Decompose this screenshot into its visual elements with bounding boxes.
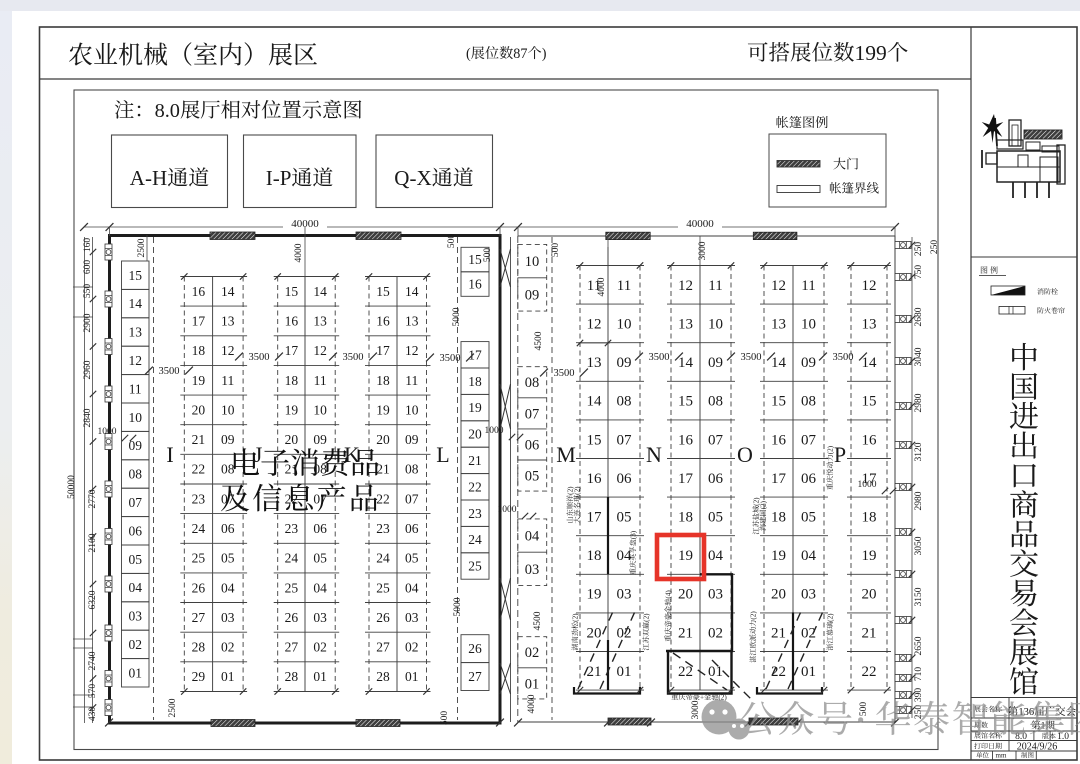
- svg-text:05: 05: [708, 510, 723, 526]
- svg-text:14: 14: [128, 296, 142, 311]
- svg-text:04: 04: [801, 548, 817, 564]
- svg-text:21: 21: [192, 432, 206, 447]
- svg-text:08: 08: [801, 394, 816, 410]
- svg-text:430: 430: [88, 707, 98, 722]
- svg-text:03: 03: [801, 587, 816, 603]
- svg-text:15: 15: [285, 284, 299, 299]
- svg-text:17: 17: [192, 314, 206, 329]
- svg-text:9: 9: [865, 41, 876, 65]
- svg-text:-: -: [273, 166, 280, 190]
- svg-text:24: 24: [192, 521, 206, 536]
- svg-text:27: 27: [192, 610, 206, 625]
- svg-text:06: 06: [405, 521, 419, 536]
- svg-text:8: 8: [513, 46, 520, 62]
- svg-text:50000: 50000: [67, 475, 77, 499]
- svg-text:2770: 2770: [88, 489, 98, 508]
- svg-text:13: 13: [128, 325, 142, 340]
- svg-text:04: 04: [128, 580, 142, 595]
- svg-text:04: 04: [221, 580, 235, 595]
- svg-text:22: 22: [192, 462, 206, 477]
- svg-text:25: 25: [192, 551, 206, 566]
- svg-text:05: 05: [313, 551, 327, 566]
- svg-text:03: 03: [708, 587, 723, 603]
- svg-text:4000: 4000: [597, 277, 607, 296]
- svg-text:21: 21: [678, 625, 693, 641]
- svg-text:16: 16: [285, 314, 299, 329]
- svg-text:20: 20: [862, 587, 877, 603]
- svg-text:03: 03: [525, 562, 540, 578]
- svg-text:24: 24: [468, 532, 482, 547]
- svg-text:12: 12: [678, 278, 693, 294]
- svg-text:18: 18: [468, 374, 482, 389]
- svg-text:17: 17: [285, 343, 299, 358]
- svg-text:5000: 5000: [453, 597, 463, 616]
- svg-text:2680: 2680: [914, 307, 924, 326]
- svg-text:25: 25: [285, 580, 299, 595]
- svg-text:250: 250: [914, 242, 924, 257]
- svg-text:(: (: [466, 46, 471, 62]
- svg-text:): ): [542, 46, 547, 62]
- svg-text:19: 19: [192, 373, 206, 388]
- svg-text:19: 19: [587, 587, 602, 603]
- svg-text:·: ·: [855, 700, 867, 741]
- svg-text:14: 14: [587, 394, 603, 410]
- svg-text:24: 24: [376, 551, 390, 566]
- svg-text:07: 07: [708, 432, 724, 448]
- svg-text:26: 26: [192, 580, 206, 595]
- svg-text:26: 26: [285, 610, 299, 625]
- svg-text:3500: 3500: [554, 368, 575, 379]
- svg-text:2980: 2980: [914, 491, 924, 510]
- svg-text:12: 12: [862, 278, 877, 294]
- svg-text:01: 01: [128, 665, 142, 680]
- svg-text:16: 16: [678, 432, 694, 448]
- svg-text:10: 10: [313, 403, 327, 418]
- svg-text:14: 14: [405, 284, 419, 299]
- svg-text:05: 05: [525, 469, 540, 485]
- svg-text:15: 15: [376, 284, 390, 299]
- svg-text:10: 10: [525, 254, 540, 270]
- svg-text:03: 03: [313, 610, 327, 625]
- svg-text:390: 390: [914, 688, 924, 703]
- svg-text:13: 13: [405, 314, 419, 329]
- svg-text:10: 10: [617, 317, 632, 333]
- svg-text:09: 09: [313, 432, 327, 447]
- svg-text:4000: 4000: [294, 243, 304, 262]
- svg-text:3500: 3500: [741, 352, 762, 363]
- svg-text:13: 13: [771, 317, 786, 333]
- svg-text:21: 21: [468, 453, 482, 468]
- svg-text:17: 17: [376, 343, 390, 358]
- svg-text:09: 09: [617, 355, 632, 371]
- svg-text:2840: 2840: [83, 408, 93, 427]
- svg-text:03: 03: [221, 610, 235, 625]
- svg-text:160: 160: [83, 238, 93, 253]
- svg-text:15: 15: [468, 252, 482, 267]
- svg-text:03: 03: [128, 609, 142, 624]
- svg-text:18: 18: [192, 343, 206, 358]
- svg-text:18: 18: [678, 510, 693, 526]
- svg-text:17: 17: [587, 510, 603, 526]
- svg-text:20: 20: [376, 432, 390, 447]
- svg-text:08: 08: [128, 467, 142, 482]
- svg-text:22: 22: [678, 664, 693, 680]
- svg-text:1000: 1000: [485, 426, 504, 436]
- svg-text:2740: 2740: [88, 651, 98, 670]
- svg-text:9: 9: [876, 41, 887, 65]
- svg-text:02: 02: [313, 640, 327, 655]
- svg-text:08: 08: [405, 462, 419, 477]
- svg-text:10: 10: [128, 410, 142, 425]
- svg-text:1000: 1000: [498, 505, 517, 515]
- svg-text:17: 17: [771, 471, 787, 487]
- svg-text:06: 06: [708, 471, 724, 487]
- svg-text:P: P: [834, 442, 846, 467]
- svg-text:16: 16: [376, 314, 390, 329]
- svg-text:20: 20: [468, 427, 482, 442]
- svg-text:mm: mm: [996, 752, 1007, 760]
- svg-text:07: 07: [405, 491, 419, 506]
- svg-text:05: 05: [801, 510, 816, 526]
- svg-text:20: 20: [771, 587, 786, 603]
- svg-text:2500: 2500: [168, 698, 178, 717]
- svg-text:27: 27: [376, 640, 390, 655]
- svg-text:Q: Q: [394, 166, 409, 190]
- svg-text:250: 250: [930, 240, 940, 255]
- svg-text:07: 07: [525, 406, 540, 422]
- svg-text:01: 01: [525, 676, 540, 692]
- svg-text:07: 07: [313, 491, 327, 506]
- svg-text:18: 18: [376, 373, 390, 388]
- svg-text:04: 04: [525, 529, 540, 545]
- svg-text:04: 04: [313, 580, 327, 595]
- svg-text:14: 14: [221, 284, 235, 299]
- svg-text:11: 11: [221, 373, 234, 388]
- svg-text:08: 08: [708, 394, 723, 410]
- svg-text:N: N: [646, 442, 662, 467]
- svg-text:09: 09: [801, 355, 816, 371]
- svg-text:H: H: [152, 166, 167, 190]
- svg-text:04: 04: [708, 548, 724, 564]
- svg-text:2900: 2900: [83, 313, 93, 332]
- svg-text:28: 28: [376, 669, 390, 684]
- svg-text:+: +: [700, 694, 704, 702]
- svg-text:06: 06: [313, 521, 327, 536]
- svg-text:06: 06: [221, 521, 235, 536]
- svg-text:14: 14: [862, 355, 878, 371]
- svg-text:10: 10: [801, 317, 816, 333]
- svg-text:2650: 2650: [914, 636, 924, 655]
- svg-text:05: 05: [617, 510, 632, 526]
- svg-text:06: 06: [128, 523, 142, 538]
- svg-text:17: 17: [678, 471, 694, 487]
- svg-text:06: 06: [801, 471, 817, 487]
- svg-text:3500: 3500: [249, 352, 270, 363]
- svg-text:18: 18: [285, 373, 299, 388]
- svg-text:01: 01: [221, 669, 235, 684]
- svg-text:19: 19: [285, 403, 299, 418]
- svg-text:3120: 3120: [914, 442, 924, 461]
- svg-text:28: 28: [285, 669, 299, 684]
- svg-text:07: 07: [801, 432, 817, 448]
- svg-text:3050: 3050: [914, 536, 924, 555]
- svg-text:07: 07: [128, 495, 142, 510]
- svg-text:01: 01: [617, 664, 632, 680]
- svg-text:4000: 4000: [527, 694, 537, 713]
- svg-text:23: 23: [468, 506, 482, 521]
- svg-text:07: 07: [617, 432, 633, 448]
- svg-text:15: 15: [587, 432, 602, 448]
- svg-text:600: 600: [83, 260, 93, 275]
- svg-text:09: 09: [525, 288, 540, 304]
- svg-text:12: 12: [313, 343, 327, 358]
- svg-text:08: 08: [525, 375, 540, 391]
- svg-text:11: 11: [405, 373, 418, 388]
- svg-text:05: 05: [221, 551, 235, 566]
- svg-text:25: 25: [468, 559, 482, 574]
- svg-text:18: 18: [771, 510, 786, 526]
- svg-text:10: 10: [708, 317, 723, 333]
- svg-text:27: 27: [468, 669, 482, 684]
- svg-text:15: 15: [128, 268, 142, 283]
- svg-text:05: 05: [405, 551, 419, 566]
- svg-text:15: 15: [771, 394, 786, 410]
- svg-text:12: 12: [587, 317, 602, 333]
- svg-text:3500: 3500: [440, 353, 461, 364]
- svg-text:500: 500: [447, 234, 457, 249]
- svg-text:500: 500: [440, 711, 450, 726]
- svg-text:1.0: 1.0: [1057, 732, 1069, 742]
- svg-text:2960: 2960: [83, 360, 93, 379]
- svg-text:01: 01: [405, 669, 419, 684]
- svg-text:11: 11: [801, 278, 815, 294]
- svg-text:19: 19: [678, 548, 693, 564]
- svg-text:26: 26: [468, 641, 482, 656]
- svg-text:14: 14: [771, 355, 787, 371]
- svg-text:20: 20: [192, 403, 206, 418]
- svg-text:3500: 3500: [343, 352, 364, 363]
- svg-text:15: 15: [678, 394, 693, 410]
- svg-text:22: 22: [862, 664, 877, 680]
- svg-text:0: 0: [170, 100, 180, 122]
- svg-text:02: 02: [221, 640, 235, 655]
- svg-text:-: -: [410, 166, 417, 190]
- svg-text:3150: 3150: [914, 587, 924, 606]
- svg-text:O: O: [737, 442, 753, 467]
- svg-text:11: 11: [708, 278, 722, 294]
- svg-text:3500: 3500: [833, 352, 854, 363]
- svg-text:17: 17: [468, 347, 482, 362]
- svg-text:1000: 1000: [858, 480, 877, 490]
- svg-text:11: 11: [617, 278, 631, 294]
- svg-text:3500: 3500: [649, 352, 670, 363]
- svg-text:14: 14: [313, 284, 327, 299]
- svg-text:X: X: [417, 166, 432, 190]
- svg-text:4500: 4500: [534, 331, 544, 350]
- svg-text:28: 28: [192, 640, 206, 655]
- svg-text:13: 13: [862, 317, 877, 333]
- svg-text:11: 11: [314, 373, 327, 388]
- svg-text:08: 08: [617, 394, 632, 410]
- svg-text:2024/9/26: 2024/9/26: [1017, 742, 1058, 753]
- svg-text:250: 250: [914, 705, 924, 720]
- svg-text:21: 21: [862, 625, 877, 641]
- svg-text:18: 18: [862, 510, 877, 526]
- svg-text:02: 02: [617, 625, 632, 641]
- svg-text:4500: 4500: [533, 611, 543, 630]
- svg-text:11: 11: [129, 381, 142, 396]
- svg-text:25: 25: [376, 580, 390, 595]
- svg-text:3000: 3000: [691, 700, 701, 719]
- svg-text:L: L: [436, 442, 449, 467]
- svg-text:27: 27: [285, 640, 299, 655]
- svg-text:01: 01: [708, 664, 723, 680]
- svg-text:2500: 2500: [137, 238, 147, 257]
- svg-text:22: 22: [376, 491, 390, 506]
- svg-text:1: 1: [855, 41, 866, 65]
- svg-text:14: 14: [678, 355, 694, 371]
- svg-text:02: 02: [128, 637, 142, 652]
- svg-text:6320: 6320: [88, 590, 98, 609]
- svg-text:550: 550: [83, 284, 93, 299]
- svg-text:06: 06: [525, 437, 540, 453]
- svg-text:18: 18: [587, 548, 602, 564]
- svg-text:13: 13: [678, 317, 693, 333]
- svg-text:13: 13: [313, 314, 327, 329]
- svg-text:16: 16: [771, 432, 787, 448]
- svg-text:06: 06: [617, 471, 633, 487]
- svg-text:710: 710: [914, 667, 924, 682]
- svg-text:04: 04: [405, 580, 419, 595]
- svg-text:20: 20: [678, 587, 693, 603]
- svg-text:16: 16: [862, 432, 878, 448]
- svg-text:12: 12: [771, 278, 786, 294]
- svg-text:08: 08: [221, 462, 235, 477]
- svg-text:16: 16: [587, 471, 603, 487]
- svg-text:3500: 3500: [159, 366, 180, 377]
- svg-text:20: 20: [587, 625, 602, 641]
- svg-text:09: 09: [221, 432, 235, 447]
- svg-text:13: 13: [587, 355, 602, 371]
- svg-text:1000: 1000: [98, 427, 117, 437]
- svg-text:22: 22: [468, 479, 482, 494]
- svg-text:01: 01: [801, 664, 816, 680]
- svg-text:20: 20: [285, 432, 299, 447]
- svg-text:13: 13: [221, 314, 235, 329]
- svg-text:12: 12: [128, 353, 142, 368]
- svg-text:3040: 3040: [914, 347, 924, 366]
- svg-text:19: 19: [771, 548, 786, 564]
- svg-text:19: 19: [376, 403, 390, 418]
- svg-text:19: 19: [468, 400, 482, 415]
- svg-text:03: 03: [405, 610, 419, 625]
- svg-text:02: 02: [405, 640, 419, 655]
- svg-text:23: 23: [285, 521, 299, 536]
- svg-text:M: M: [556, 442, 576, 467]
- svg-text:23: 23: [192, 491, 206, 506]
- svg-text:15: 15: [862, 394, 877, 410]
- svg-text:02: 02: [708, 625, 723, 641]
- svg-text:5000: 5000: [452, 307, 462, 326]
- svg-text:A: A: [130, 166, 146, 190]
- svg-text:03: 03: [617, 587, 632, 603]
- svg-text:23: 23: [376, 521, 390, 536]
- svg-text:750: 750: [914, 265, 924, 280]
- svg-text:12: 12: [405, 343, 419, 358]
- svg-text:I: I: [166, 442, 173, 467]
- svg-text:05: 05: [128, 552, 142, 567]
- svg-text:500: 500: [483, 248, 493, 263]
- svg-text:P: P: [280, 166, 292, 190]
- svg-text:I: I: [266, 166, 273, 190]
- svg-text:2980: 2980: [914, 393, 924, 412]
- svg-text:16: 16: [192, 284, 206, 299]
- svg-text:10: 10: [221, 403, 235, 418]
- svg-text:570: 570: [88, 684, 98, 699]
- svg-text:21: 21: [587, 664, 602, 680]
- svg-text:26: 26: [376, 610, 390, 625]
- svg-text:09: 09: [708, 355, 723, 371]
- svg-text:21: 21: [771, 625, 786, 641]
- svg-text:19: 19: [862, 548, 877, 564]
- svg-text:3000: 3000: [698, 241, 708, 260]
- svg-text:8: 8: [155, 100, 165, 122]
- svg-text:500: 500: [551, 243, 561, 258]
- svg-text:12: 12: [221, 343, 235, 358]
- svg-text:01: 01: [313, 669, 327, 684]
- svg-text:16: 16: [468, 277, 482, 292]
- svg-text:02: 02: [525, 645, 540, 661]
- svg-text:09: 09: [405, 432, 419, 447]
- svg-text:-: -: [145, 166, 152, 190]
- svg-text:40000: 40000: [686, 218, 714, 230]
- svg-text:10: 10: [405, 403, 419, 418]
- svg-text:7: 7: [520, 46, 527, 62]
- svg-text:24: 24: [285, 551, 299, 566]
- svg-text:29: 29: [192, 669, 206, 684]
